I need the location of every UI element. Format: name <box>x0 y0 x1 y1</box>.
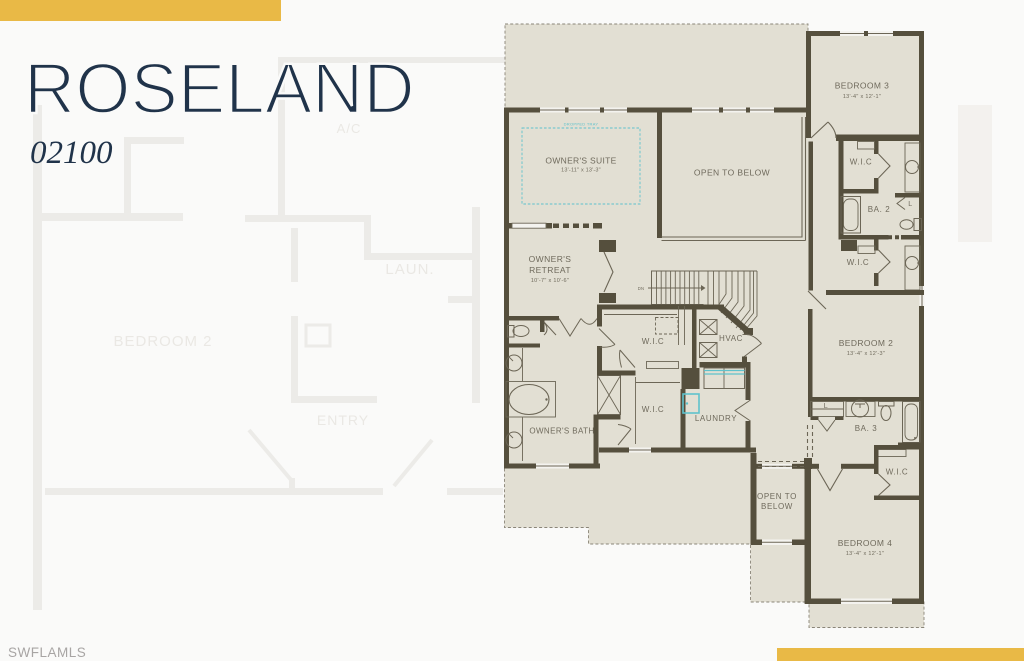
svg-text:HVAC: HVAC <box>719 334 743 343</box>
svg-text:10'-7" x 10'-6": 10'-7" x 10'-6" <box>531 278 569 284</box>
svg-text:BEDROOM 2: BEDROOM 2 <box>113 333 212 350</box>
svg-text:BEDROOM 2: BEDROOM 2 <box>839 338 894 348</box>
svg-text:RETREAT: RETREAT <box>529 265 571 275</box>
svg-text:DROPPED TRAY: DROPPED TRAY <box>564 122 599 127</box>
svg-text:L: L <box>824 403 829 410</box>
svg-text:SWFLAMLS: SWFLAMLS <box>8 645 86 660</box>
svg-text:13'-11" x 13'-3": 13'-11" x 13'-3" <box>561 168 601 174</box>
svg-text:ENTRY: ENTRY <box>317 412 369 428</box>
svg-text:LAUN.: LAUN. <box>385 261 434 278</box>
svg-text:OWNER'S BATH: OWNER'S BATH <box>529 427 594 436</box>
svg-text:BA. 3: BA. 3 <box>855 424 878 433</box>
svg-text:L: L <box>908 201 913 208</box>
svg-text:W.I.C: W.I.C <box>886 468 909 477</box>
svg-text:OPEN TO BELOW: OPEN TO BELOW <box>694 168 770 178</box>
svg-text:13'-4" x 12'-1": 13'-4" x 12'-1" <box>846 551 884 557</box>
svg-text:W.I.C: W.I.C <box>847 258 870 267</box>
svg-text:13'-4" x 12'-1": 13'-4" x 12'-1" <box>843 94 881 100</box>
svg-text:13'-4" x 12'-3": 13'-4" x 12'-3" <box>847 351 885 357</box>
svg-text:BELOW: BELOW <box>761 502 793 511</box>
svg-text:BEDROOM 4: BEDROOM 4 <box>838 538 893 548</box>
svg-text:W.I.C: W.I.C <box>642 337 665 346</box>
svg-text:DN: DN <box>638 286 644 291</box>
svg-text:BA. 2: BA. 2 <box>868 205 891 214</box>
svg-text:02100: 02100 <box>30 135 113 171</box>
svg-text:OWNER'S SUITE: OWNER'S SUITE <box>545 156 616 166</box>
svg-text:W.I.C: W.I.C <box>850 158 873 167</box>
svg-text:LAUNDRY: LAUNDRY <box>695 414 737 423</box>
svg-text:OWNER'S: OWNER'S <box>529 254 572 264</box>
svg-text:OPEN TO: OPEN TO <box>757 492 797 501</box>
svg-text:W.I.C: W.I.C <box>642 405 665 414</box>
svg-text:ROSELAND: ROSELAND <box>24 50 415 129</box>
svg-text:BEDROOM 3: BEDROOM 3 <box>835 81 890 91</box>
